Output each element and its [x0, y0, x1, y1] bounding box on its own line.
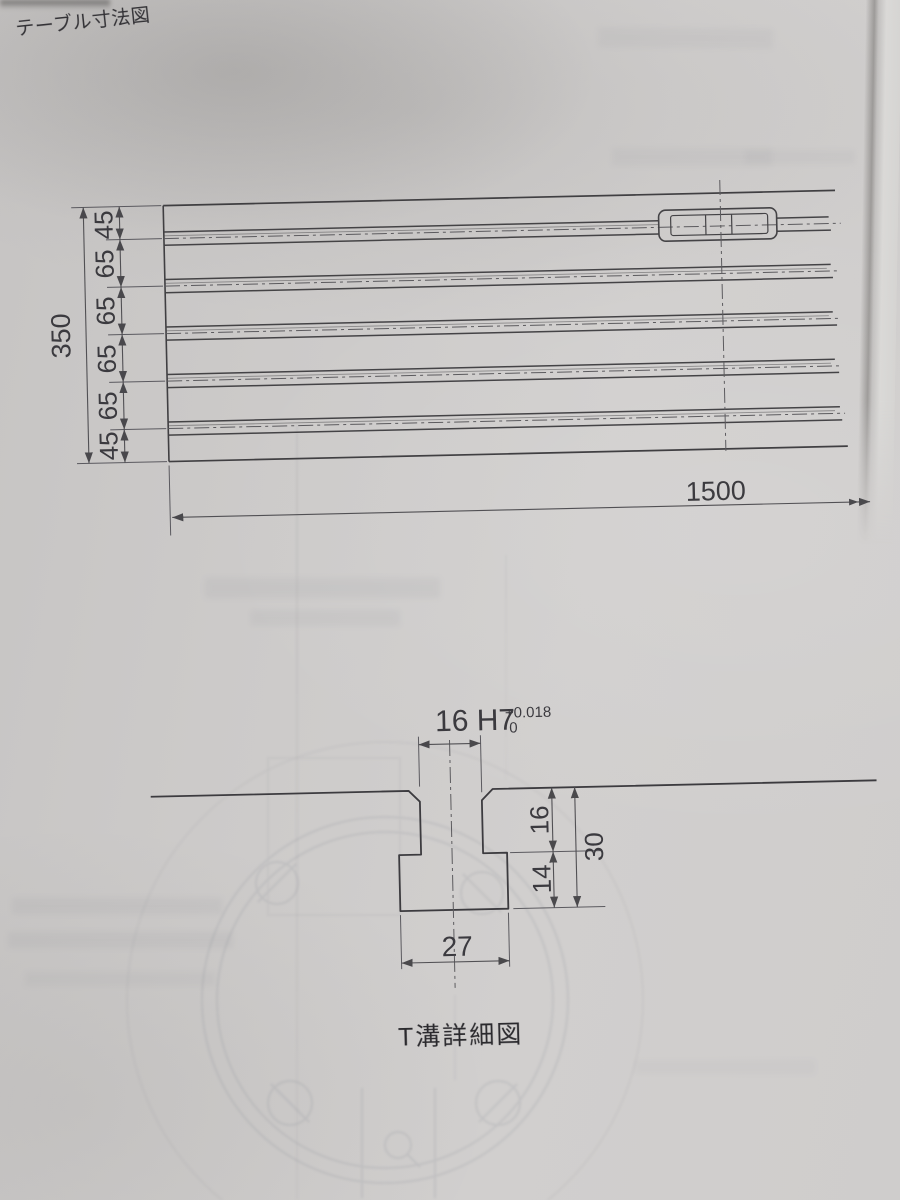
dimension-line [123, 382, 124, 429]
base-width-label: 27 [441, 931, 473, 963]
tolerance-lower-label: 0 [509, 719, 518, 736]
dimension-line [575, 787, 578, 907]
extension-line [109, 381, 165, 382]
height-segment-label: 65 [91, 344, 122, 374]
height-segment-label: 65 [89, 249, 120, 279]
dimension-line [124, 430, 125, 463]
t-slot-row-1 [164, 217, 841, 246]
extension-line [108, 334, 164, 335]
table-top-view: 45 65 65 65 65 45 350 1500 [43, 177, 871, 539]
total-depth-label: 30 [579, 832, 610, 862]
extension-line [508, 913, 509, 967]
height-segment-label: 65 [92, 391, 123, 421]
block-centerline [720, 180, 726, 451]
depth-dimensions: 16 14 30 [509, 786, 611, 908]
slot-width-dimension: 16 H7 +0.018 0 [418, 703, 553, 794]
dimension-line [122, 335, 123, 382]
dimension-line [120, 240, 121, 287]
table-bottom-edge [169, 446, 848, 461]
t-slot-profile [151, 780, 880, 916]
dimension-line [419, 743, 481, 744]
dimension-line [83, 207, 89, 463]
dimension-line [121, 287, 122, 334]
height-segment-label: 45 [93, 431, 124, 461]
length-dimension: 1500 [169, 450, 870, 536]
height-segment-label: 45 [88, 210, 119, 240]
extension-line [169, 466, 171, 536]
extension-line [513, 906, 605, 908]
height-segment-label: 65 [90, 296, 121, 326]
extension-line [71, 206, 161, 208]
t-slot-row-4 [167, 359, 843, 388]
length-label: 1500 [685, 475, 746, 506]
extension-line [110, 429, 166, 430]
extension-line [77, 462, 167, 464]
t-slot-row-2 [165, 264, 840, 293]
slot-width-label: 16 H7 [435, 703, 516, 738]
paper-corner-shadow [0, 0, 110, 9]
extension-line [400, 915, 401, 969]
t-slot-detail-view: 16 H7 +0.018 0 16 14 30 27 [149, 695, 881, 994]
base-width-dimension: 27 [400, 913, 509, 969]
t-slot-row-3 [166, 312, 842, 341]
table-top-edge [163, 190, 835, 205]
dimension-line [172, 502, 870, 518]
dimension-line [119, 207, 120, 240]
t-slot-row-5 [168, 407, 845, 436]
throat-depth-label: 16 [524, 805, 555, 835]
total-height-label: 350 [46, 313, 77, 359]
total-height-dimension: 350 [43, 207, 89, 464]
extension-line [107, 286, 163, 287]
undercut-depth-label: 14 [526, 864, 557, 894]
t-nut-block [658, 208, 777, 242]
photo-of-technical-drawing: 45 65 65 65 65 45 350 1500 [0, 0, 900, 1200]
detail-caption: T溝詳細図 [398, 1014, 524, 1053]
